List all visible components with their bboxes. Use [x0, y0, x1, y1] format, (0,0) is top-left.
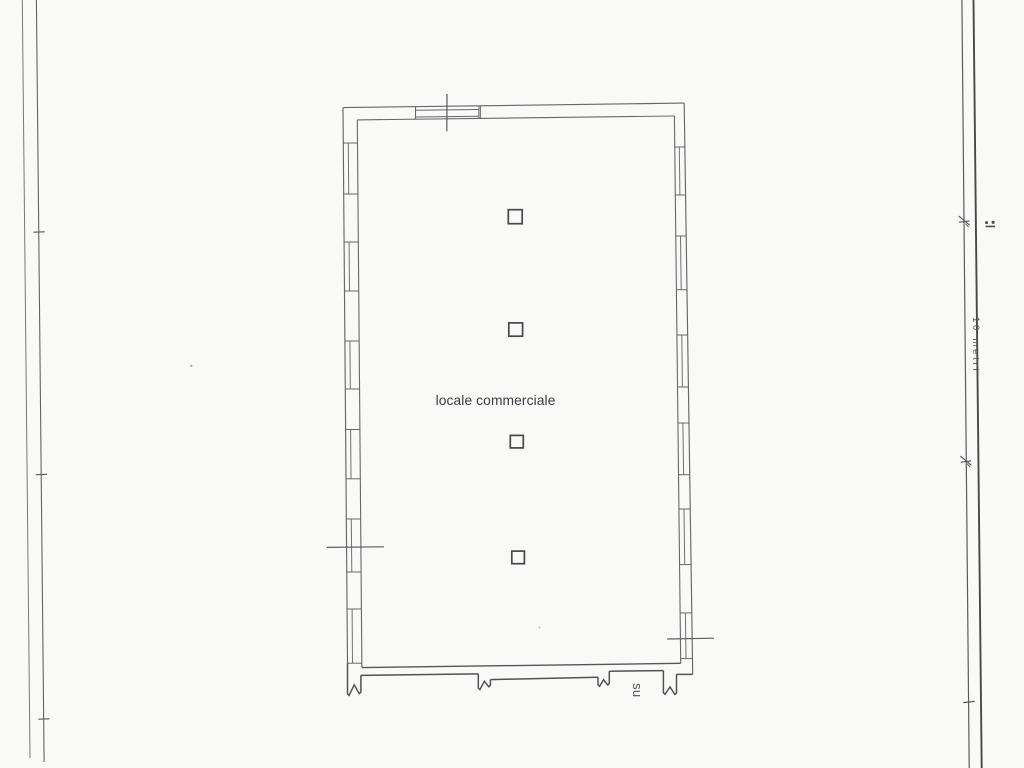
svg-text:su: su [630, 683, 645, 697]
svg-text:10 metri: 10 metri [970, 317, 981, 373]
svg-text:locale commerciale: locale commerciale [436, 393, 556, 408]
